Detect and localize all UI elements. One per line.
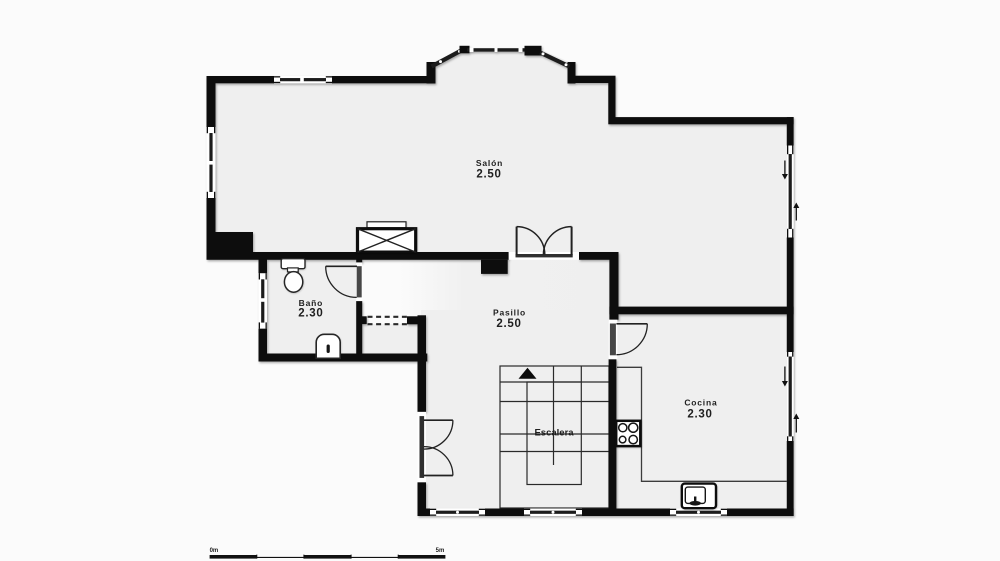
svg-text:2.30: 2.30 [687,409,712,421]
svg-text:Escalera: Escalera [534,427,574,438]
svg-text:Pasillo: Pasillo [493,307,526,317]
svg-text:5m: 5m [436,548,445,554]
svg-text:Salón: Salón [476,158,503,168]
svg-text:Cocina: Cocina [684,397,717,407]
svg-text:2.50: 2.50 [496,318,521,330]
svg-text:2.50: 2.50 [476,169,501,181]
svg-text:2.30: 2.30 [298,307,323,319]
svg-text:0m: 0m [210,548,219,554]
